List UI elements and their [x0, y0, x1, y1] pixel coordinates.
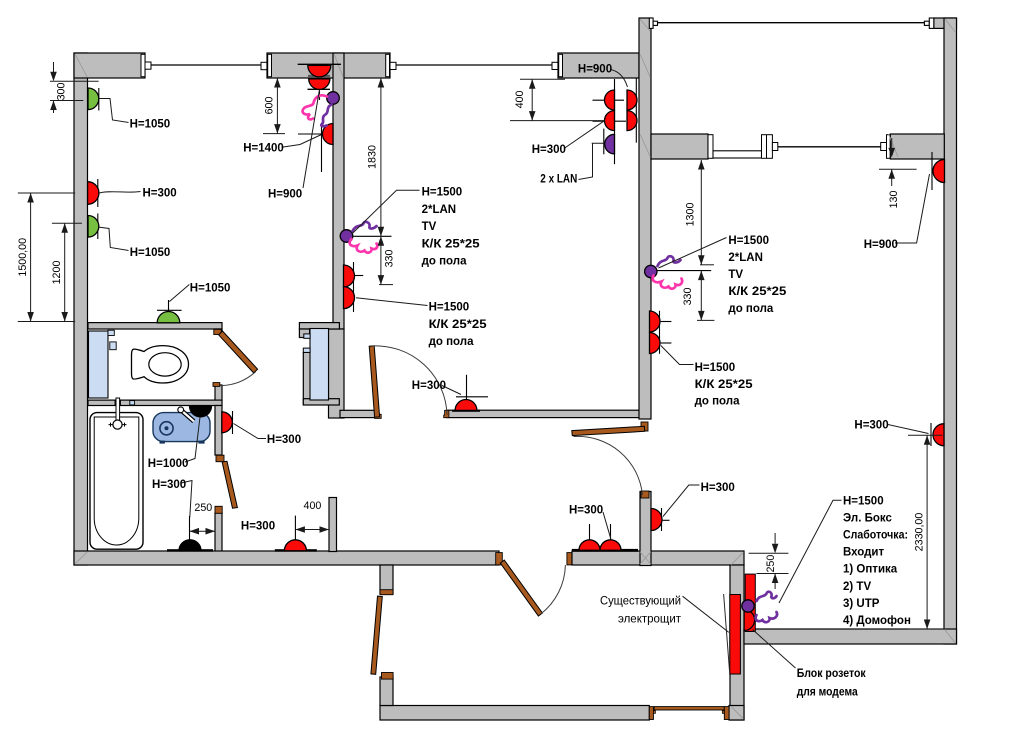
svg-text:1500,00: 1500,00 [17, 238, 29, 277]
svg-text:H=1050: H=1050 [130, 247, 171, 259]
svg-text:К/К 25*25: К/К 25*25 [728, 286, 787, 298]
svg-text:H=300: H=300 [152, 479, 186, 491]
svg-text:К/К 25*25: К/К 25*25 [429, 319, 488, 331]
svg-text:2330,00: 2330,00 [914, 513, 926, 552]
svg-text:2) TV: 2) TV [843, 581, 871, 593]
svg-text:H=900: H=900 [864, 239, 898, 251]
svg-text:250: 250 [765, 555, 777, 573]
svg-text:300: 300 [55, 83, 67, 101]
svg-text:H=300: H=300 [532, 144, 566, 156]
svg-text:H=300: H=300 [569, 505, 603, 517]
svg-text:H=1500: H=1500 [695, 362, 736, 374]
svg-text:400: 400 [514, 91, 526, 109]
svg-text:до пола: до пола [728, 303, 774, 315]
svg-text:до пола: до пола [695, 396, 741, 408]
svg-text:H=1500: H=1500 [429, 302, 470, 314]
svg-text:H=300: H=300 [241, 520, 275, 532]
svg-text:H=1050: H=1050 [130, 118, 171, 130]
svg-text:H=300: H=300 [412, 380, 446, 392]
svg-text:до пола: до пола [429, 336, 475, 348]
svg-text:H=300: H=300 [854, 420, 888, 432]
svg-text:К/К 25*25: К/К 25*25 [422, 238, 481, 250]
svg-text:600: 600 [264, 97, 276, 115]
svg-text:H=1500: H=1500 [422, 187, 463, 199]
svg-text:H=300: H=300 [701, 482, 735, 494]
svg-text:H=900: H=900 [578, 64, 612, 76]
svg-text:Входит: Входит [843, 547, 885, 559]
svg-text:1) Оптика: 1) Оптика [843, 564, 898, 576]
svg-text:3) UTP: 3) UTP [843, 598, 880, 610]
svg-text:1830: 1830 [367, 145, 379, 169]
svg-text:H=1500: H=1500 [843, 495, 884, 507]
svg-text:до пола: до пола [422, 256, 468, 268]
svg-text:H=300: H=300 [143, 188, 177, 200]
svg-text:H=300: H=300 [267, 434, 301, 446]
svg-text:электрощит: электрощит [618, 612, 681, 626]
svg-text:TV: TV [728, 269, 743, 281]
svg-text:400: 400 [304, 500, 322, 512]
svg-text:H=1400: H=1400 [243, 142, 284, 154]
svg-text:330: 330 [682, 288, 694, 306]
svg-text:Слаботочка:: Слаботочка: [843, 530, 908, 542]
svg-text:H=900: H=900 [268, 189, 302, 201]
svg-text:H=1050: H=1050 [190, 283, 231, 295]
svg-text:К/К 25*25: К/К 25*25 [695, 379, 754, 391]
svg-text:H=1000: H=1000 [148, 458, 189, 470]
svg-text:H=1500: H=1500 [728, 235, 769, 247]
svg-text:Блок розеток: Блок розеток [797, 668, 866, 680]
svg-text:2*LAN: 2*LAN [728, 252, 763, 264]
svg-text:TV: TV [422, 221, 437, 233]
svg-text:4) Домофон: 4) Домофон [843, 615, 911, 627]
svg-text:Эл. Бокс: Эл. Бокс [843, 512, 892, 524]
svg-text:1300: 1300 [685, 203, 697, 227]
svg-text:2 x LAN: 2 x LAN [540, 173, 577, 185]
svg-text:для модема: для модема [797, 686, 859, 698]
svg-text:2*LAN: 2*LAN [422, 204, 457, 216]
svg-text:250: 250 [194, 502, 212, 514]
svg-text:330: 330 [384, 250, 396, 268]
svg-text:Существующий: Существующий [600, 593, 681, 607]
svg-text:1200: 1200 [51, 261, 63, 285]
svg-text:130: 130 [888, 191, 900, 209]
